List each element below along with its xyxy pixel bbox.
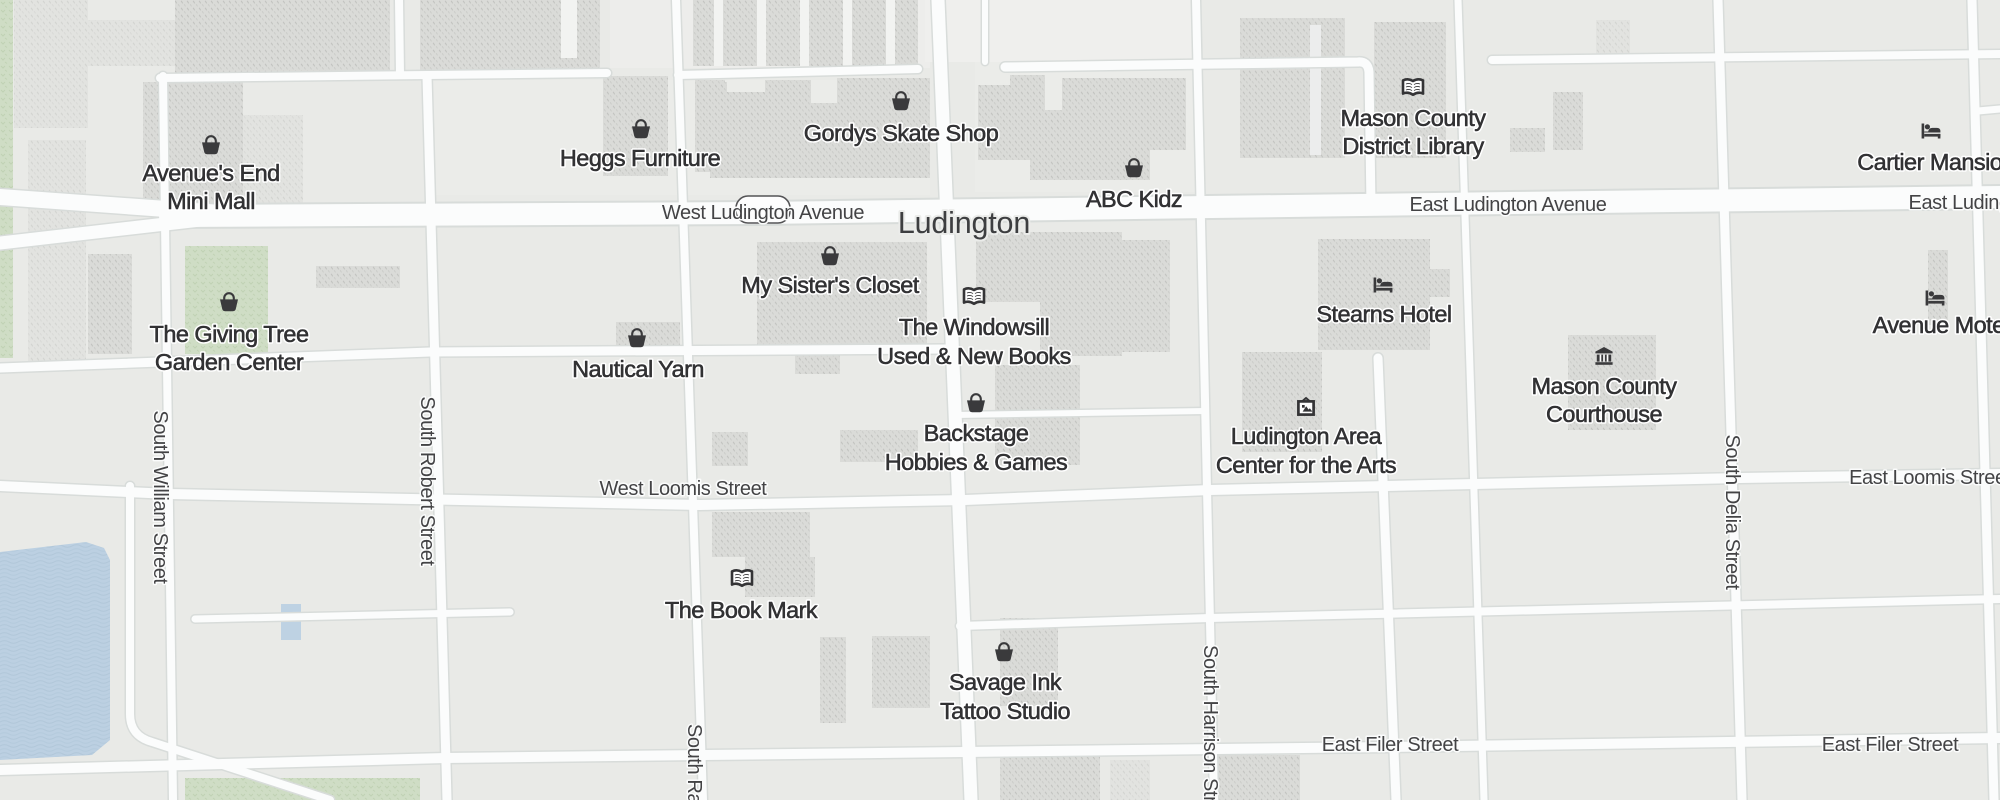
svg-text:Avenue Motel: Avenue Motel — [1873, 312, 2000, 338]
svg-text:Gordys Skate Shop: Gordys Skate Shop — [804, 120, 999, 146]
svg-text:Garden Center: Garden Center — [155, 349, 304, 375]
svg-text:Mason County: Mason County — [1532, 373, 1678, 399]
svg-text:East Filer Street: East Filer Street — [1822, 734, 1959, 756]
svg-text:Stearns Hotel: Stearns Hotel — [1316, 301, 1451, 327]
svg-text:Center for the Arts: Center for the Arts — [1216, 452, 1396, 478]
svg-text:Ludington Area: Ludington Area — [1231, 423, 1383, 449]
svg-text:East Ludington Avenue: East Ludington Avenue — [1909, 192, 2000, 214]
svg-text:The Windowsill: The Windowsill — [899, 314, 1049, 340]
svg-text:Tattoo Studio: Tattoo Studio — [940, 698, 1071, 724]
svg-text:Used & New Books: Used & New Books — [877, 343, 1071, 369]
svg-text:South Delia Street: South Delia Street — [1721, 434, 1743, 590]
svg-text:East Ludington Avenue: East Ludington Avenue — [1410, 194, 1607, 216]
svg-text:South Harrison Street: South Harrison Street — [1199, 645, 1221, 800]
svg-text:My Sister's Closet: My Sister's Closet — [741, 272, 919, 298]
svg-text:The Giving Tree: The Giving Tree — [150, 321, 309, 347]
svg-text:Nautical Yarn: Nautical Yarn — [572, 356, 704, 382]
svg-text:Heggs Furniture: Heggs Furniture — [560, 145, 721, 171]
svg-text:Avenue's End: Avenue's End — [142, 160, 279, 186]
svg-text:Mason County: Mason County — [1341, 105, 1487, 131]
svg-text:Cartier Mansion: Cartier Mansion — [1857, 149, 2000, 175]
svg-text:District Library: District Library — [1342, 133, 1484, 159]
svg-text:West Ludington Avenue: West Ludington Avenue — [662, 202, 864, 224]
svg-text:South Rath Street: South Rath Street — [683, 724, 705, 800]
svg-text:Ludington: Ludington — [898, 206, 1030, 240]
svg-text:South Robert Street: South Robert Street — [416, 396, 438, 566]
svg-text:South William Street: South William Street — [149, 410, 171, 584]
svg-text:Courthouse: Courthouse — [1546, 401, 1662, 427]
svg-text:Hobbies & Games: Hobbies & Games — [885, 449, 1067, 475]
svg-text:Backstage: Backstage — [924, 420, 1029, 446]
svg-text:Mini Mall: Mini Mall — [167, 188, 255, 214]
svg-text:East Filer Street: East Filer Street — [1322, 734, 1459, 756]
svg-text:The Book Mark: The Book Mark — [665, 597, 818, 623]
svg-text:West Loomis Street: West Loomis Street — [600, 478, 768, 500]
svg-text:Savage Ink: Savage Ink — [949, 669, 1062, 695]
svg-text:East Loomis Street: East Loomis Street — [1849, 467, 2000, 489]
svg-text:ABC Kidz: ABC Kidz — [1086, 186, 1182, 212]
